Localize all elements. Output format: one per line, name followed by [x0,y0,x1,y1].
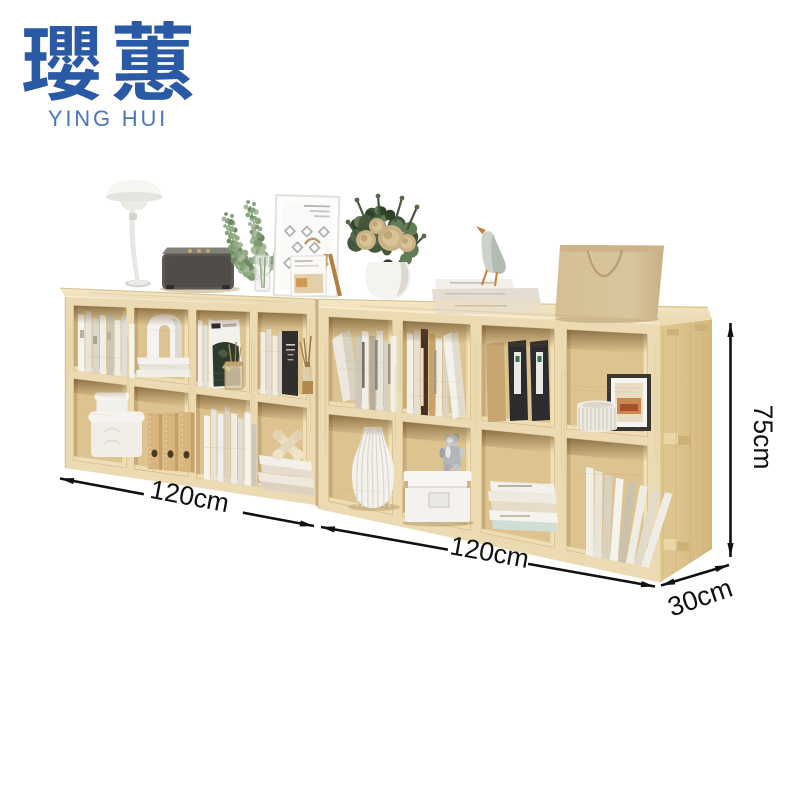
svg-text:75cm: 75cm [748,405,778,470]
svg-text:YING HUI: YING HUI [48,106,168,131]
